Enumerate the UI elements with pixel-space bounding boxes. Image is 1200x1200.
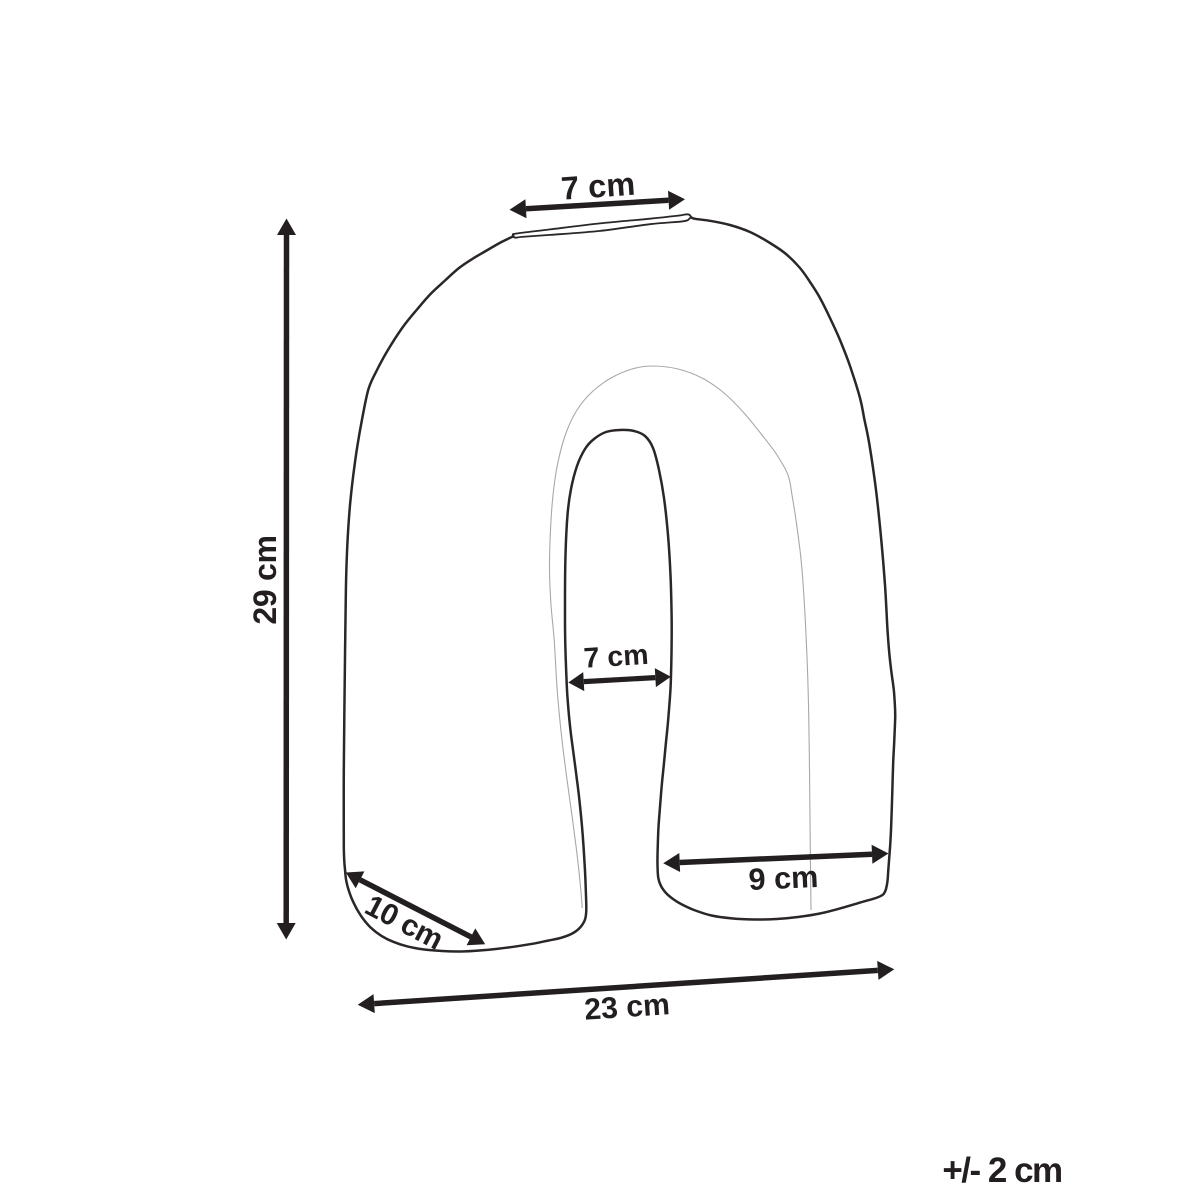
svg-text:23 cm: 23 cm	[583, 988, 671, 1027]
svg-text:7 cm: 7 cm	[560, 166, 636, 207]
svg-text:9 cm: 9 cm	[748, 860, 819, 897]
svg-text:29 cm: 29 cm	[247, 535, 283, 624]
svg-text:7 cm: 7 cm	[583, 639, 650, 675]
svg-text:+/- 2 cm: +/- 2 cm	[942, 1151, 1061, 1190]
